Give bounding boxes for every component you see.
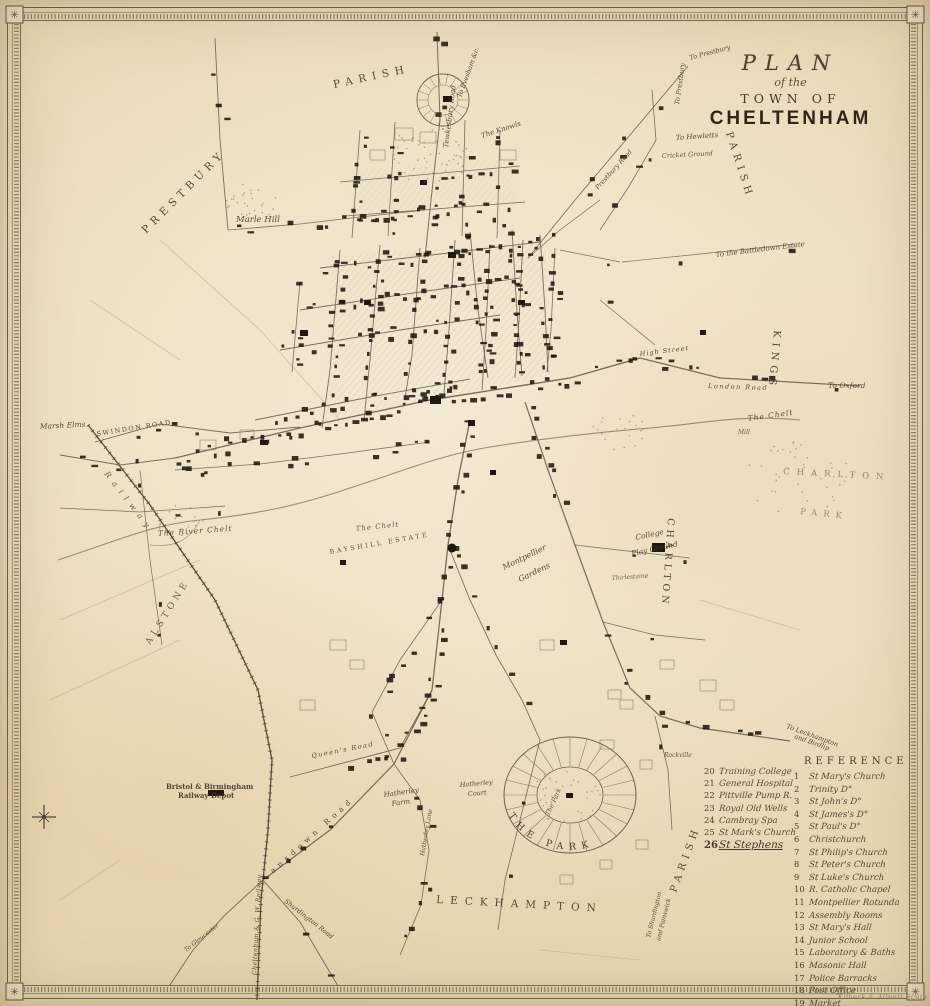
map-label: LECKHAMPTON xyxy=(436,894,603,915)
legend-item: 12 Assembly Rooms xyxy=(794,910,924,923)
legend-item-label: St Mary's Hall xyxy=(809,923,872,933)
legend-item-label: Training College xyxy=(719,767,792,777)
legend-item: 16 Masonic Hall xyxy=(794,960,924,973)
title-town-of: TOWN OF xyxy=(688,92,893,105)
legend-item-label: Cambray Spa xyxy=(719,816,778,826)
map-label: Hatherley Lane xyxy=(419,808,434,857)
legend-item-label: Pittville Pump R. xyxy=(719,791,793,801)
legend-item-label: General Hospital xyxy=(719,779,794,789)
railway-lines xyxy=(88,425,272,1000)
plot-outlines xyxy=(200,128,734,884)
legend-item-number: 23 xyxy=(704,803,719,813)
legend-item-label: Junior School xyxy=(809,936,868,946)
legend-item-label: St Paul's D° xyxy=(809,822,861,832)
map-label: ALSTONE xyxy=(144,578,192,647)
legend-item-label: St Stephens xyxy=(719,839,784,851)
map-label: SWINDON ROAD xyxy=(96,418,172,438)
map-label: PARISH xyxy=(723,131,755,201)
legend-item-number: 22 xyxy=(704,790,719,800)
title-cheltenham: CHELTENHAM xyxy=(688,109,893,129)
legend-item-label: St James's D° xyxy=(809,810,869,820)
legend-item-number: 7 xyxy=(794,847,809,857)
map-label: PRESTBURY xyxy=(140,148,228,236)
map-label: Cricket Ground xyxy=(662,149,713,160)
map-label: To the Battledown Estate xyxy=(715,240,805,259)
svg-text:✳: ✳ xyxy=(911,9,920,22)
map-label: PARK xyxy=(800,507,849,522)
legend-item-number: 12 xyxy=(794,910,809,920)
legend-item: 5 St Paul's D° xyxy=(794,821,924,834)
legend-item-number: 3 xyxy=(794,796,809,806)
legend-item-number: 20 xyxy=(704,766,719,776)
legend-item-label: Trinity D° xyxy=(809,785,853,795)
compass-star-icon xyxy=(32,805,56,829)
legend-item-number: 24 xyxy=(704,815,719,825)
legend-item-number: 10 xyxy=(794,884,809,894)
map-label: To Gloucester xyxy=(183,921,221,953)
legend-item-label: Royal Old Wells xyxy=(719,804,788,814)
legend-item-number: 13 xyxy=(794,922,809,932)
engraver-signature: Kilbeck & Allnutt Sculp. xyxy=(838,993,930,1001)
map-label: Court xyxy=(467,788,487,798)
legend-item-number: 9 xyxy=(794,872,809,882)
legend-item-label: Police Barracks xyxy=(809,974,878,984)
legend-item-label: Masonic Hall xyxy=(809,961,867,971)
map-label: Thirlestaine xyxy=(612,572,649,582)
legend-item-number: 25 xyxy=(704,827,719,837)
legend-item-label: Assembly Rooms xyxy=(809,911,883,921)
legend-item-number: 15 xyxy=(794,947,809,957)
legend-item-label: St Peter's Church xyxy=(809,860,887,870)
legend-item: 7 St Philip's Church xyxy=(794,847,924,860)
legend-item: 10 R. Catholic Chapel xyxy=(794,884,924,897)
legend-item: 15 Laboratory & Baths xyxy=(794,947,924,960)
map-label: Marle Hill xyxy=(235,215,280,225)
map-label: BAYSHILL ESTATE xyxy=(329,531,430,556)
map-label: College xyxy=(635,527,666,542)
legend-item-number: 2 xyxy=(794,784,809,794)
legend-item-number: 26 xyxy=(704,840,719,851)
map-label: Lansdown Road xyxy=(261,795,355,881)
map-label: Marsh Elms xyxy=(39,420,86,431)
map-label: To Evesham &c. xyxy=(455,46,481,99)
map-label: PARISH xyxy=(332,63,411,91)
svg-text:✳: ✳ xyxy=(10,9,19,22)
legend-item-number: 5 xyxy=(794,821,809,831)
legend-item-number: 6 xyxy=(794,834,809,844)
legend-item-label: St Philip's Church xyxy=(809,848,888,858)
legend-item-label: St Mark's Church xyxy=(719,828,797,838)
map-label: Bristol & Birmingham xyxy=(166,782,254,791)
title-of-the: of the xyxy=(688,77,893,89)
map-canvas: ✳✳ ✳✳ THE PARK PR xyxy=(0,0,930,1006)
map-label: The Chelt xyxy=(355,520,399,533)
legend-item: 8 St Peter's Church xyxy=(794,859,924,872)
map-label: Gardens xyxy=(517,561,552,584)
map-label: Rockville xyxy=(663,752,692,759)
map-label: CHARLTON xyxy=(783,467,891,483)
legend-item-number: 1 xyxy=(794,771,809,781)
map-label: PARISH xyxy=(668,824,702,894)
legend-item: 4 St James's D° xyxy=(794,809,924,822)
legend-item: 1 St Mary's Church xyxy=(794,771,924,784)
legend-item: 6 Christchurch xyxy=(794,834,924,847)
legend-item-number: 18 xyxy=(794,985,809,995)
map-label: The River Chelt xyxy=(158,524,233,538)
legend-item: 11 Montpellier Rotunda xyxy=(794,897,924,910)
legend-item-number: 17 xyxy=(794,973,809,983)
legend-item: 2 Trinity D° xyxy=(794,784,924,797)
legend-item-number: 4 xyxy=(794,809,809,819)
map-label: Mill xyxy=(737,429,750,436)
legend-item: 13 St Mary's Hall xyxy=(794,922,924,935)
map-label: Farm xyxy=(390,797,411,808)
title-plan: PLAN xyxy=(688,52,893,74)
legend-item-label: St Mary's Church xyxy=(809,772,886,782)
reference-header: REFERENCE xyxy=(804,756,924,767)
map-label: The Knowls xyxy=(480,119,522,140)
map-label: London Road xyxy=(707,382,768,392)
legend-item-number: 8 xyxy=(794,859,809,869)
reference-list: 1 St Mary's Church 2 Trinity D° 3 St Joh… xyxy=(794,771,924,1006)
legend-item: 17 Police Barracks xyxy=(794,973,924,986)
legend-item-label: Montpellier Rotunda xyxy=(809,898,900,908)
river-chelt xyxy=(58,418,800,560)
map-page: ✳✳ ✳✳ THE PARK PR xyxy=(0,0,930,1006)
legend-item-label: Laboratory & Baths xyxy=(809,948,896,958)
legend-item-label: R. Catholic Chapel xyxy=(809,885,891,895)
legend-item-number: 19 xyxy=(794,998,809,1006)
legend-item: 3 St John's D° xyxy=(794,796,924,809)
legend-item-number: 21 xyxy=(704,778,719,788)
legend-item-label: Christchurch xyxy=(809,835,867,845)
map-label: Hatherley xyxy=(458,778,493,789)
legend-item: 9 St Luke's Church xyxy=(794,872,924,885)
map-label: To Hewletts xyxy=(676,131,719,142)
map-title-cartouche: PLAN of the TOWN OF CHELTENHAM xyxy=(688,52,893,129)
legend-reference: REFERENCE 1 St Mary's Church 2 Trinity D… xyxy=(794,756,924,1006)
map-label: High Street xyxy=(638,344,689,358)
map-label: To Prestbury xyxy=(673,62,687,105)
map-label: Railway Depot xyxy=(178,791,235,800)
map-label: To Oxford xyxy=(828,381,866,390)
legend-item-number: 14 xyxy=(794,935,809,945)
map-label: The Chelt xyxy=(747,408,794,423)
legend-item-label: St John's D° xyxy=(809,797,862,807)
legend-item-number: 16 xyxy=(794,960,809,970)
legend-item: 14 Junior School xyxy=(794,935,924,948)
legend-item-label: Market xyxy=(809,999,841,1006)
legend-item-label: St Luke's Church xyxy=(809,873,885,883)
park-arc-label: THE PARK xyxy=(506,811,596,853)
legend-item-number: 11 xyxy=(794,897,809,907)
svg-text:✳: ✳ xyxy=(10,986,19,999)
